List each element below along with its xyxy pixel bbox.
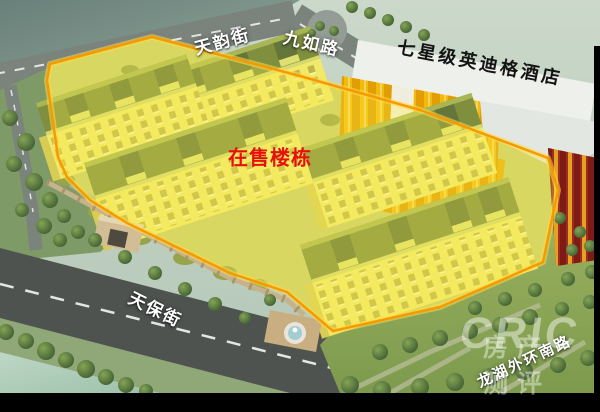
tree-icon xyxy=(53,233,67,247)
tree-icon xyxy=(2,110,18,126)
tree-icon xyxy=(42,192,58,208)
tree-icon xyxy=(580,350,596,366)
watermark-tagline: 房产测评 xyxy=(483,328,561,400)
tree-icon xyxy=(264,294,276,306)
onsale-annotation: 在售楼栋 xyxy=(228,142,312,171)
tree-icon xyxy=(346,1,358,13)
fountain-statue xyxy=(293,328,298,333)
right-black-bar xyxy=(594,46,600,393)
tree-icon xyxy=(71,225,85,239)
tree-icon xyxy=(15,203,29,217)
tree-icon xyxy=(98,369,114,385)
tree-icon xyxy=(208,297,222,311)
tree-icon xyxy=(88,233,102,247)
tree-icon xyxy=(17,133,35,151)
tree-icon xyxy=(446,373,464,391)
tree-icon xyxy=(498,292,512,306)
tree-icon xyxy=(118,377,134,393)
tree-icon xyxy=(37,342,55,360)
tree-icon xyxy=(566,244,578,256)
tree-icon xyxy=(402,337,418,353)
tree-icon xyxy=(36,218,52,234)
tree-icon xyxy=(77,360,95,378)
tree-icon xyxy=(6,156,22,172)
tree-icon xyxy=(382,14,394,26)
tree-icon xyxy=(400,21,412,33)
aerial-rendering: 天韵街 九如路 七星级英迪格酒店 在售楼栋 天保街 龙湖外环南路 CRIC 房产… xyxy=(0,0,600,412)
tree-icon xyxy=(574,226,586,238)
tree-icon xyxy=(148,266,162,280)
tree-icon xyxy=(341,376,359,394)
tree-icon xyxy=(58,352,74,368)
tree-icon xyxy=(372,344,388,360)
tree-icon xyxy=(178,282,192,296)
tree-icon xyxy=(57,209,71,223)
tree-icon xyxy=(432,330,448,346)
tree-icon xyxy=(18,333,34,349)
tree-icon xyxy=(561,272,575,286)
tree-icon xyxy=(118,250,132,264)
tree-icon xyxy=(364,7,376,19)
tree-icon xyxy=(239,312,251,324)
tree-icon xyxy=(25,173,43,191)
tree-icon xyxy=(528,283,542,297)
